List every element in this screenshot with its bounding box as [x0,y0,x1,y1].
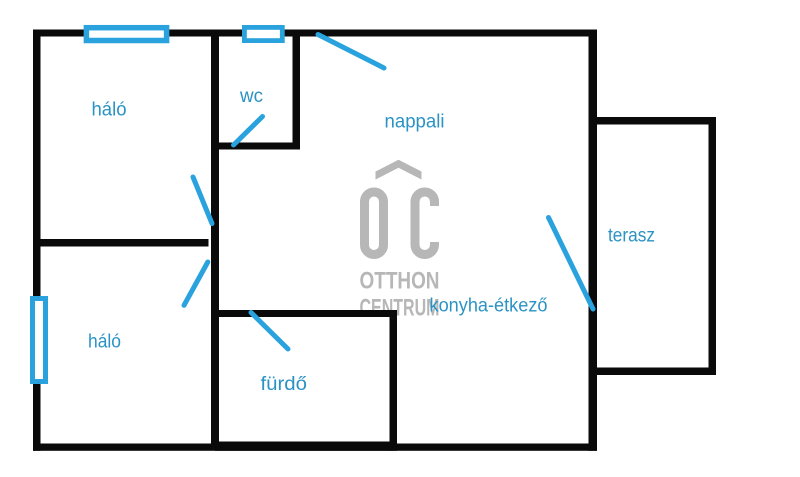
svg-text:CENTRUM: CENTRUM [360,295,440,322]
svg-text:OTTHON: OTTHON [360,268,440,295]
svg-text:háló: háló [88,332,121,353]
svg-text:háló: háló [92,100,127,121]
svg-text:fürdő: fürdő [261,374,308,395]
svg-text:wc: wc [239,86,263,107]
svg-text:nappali: nappali [385,112,445,133]
svg-text:terasz: terasz [608,226,655,247]
svg-text:konyha-étkező: konyha-étkező [430,296,548,317]
